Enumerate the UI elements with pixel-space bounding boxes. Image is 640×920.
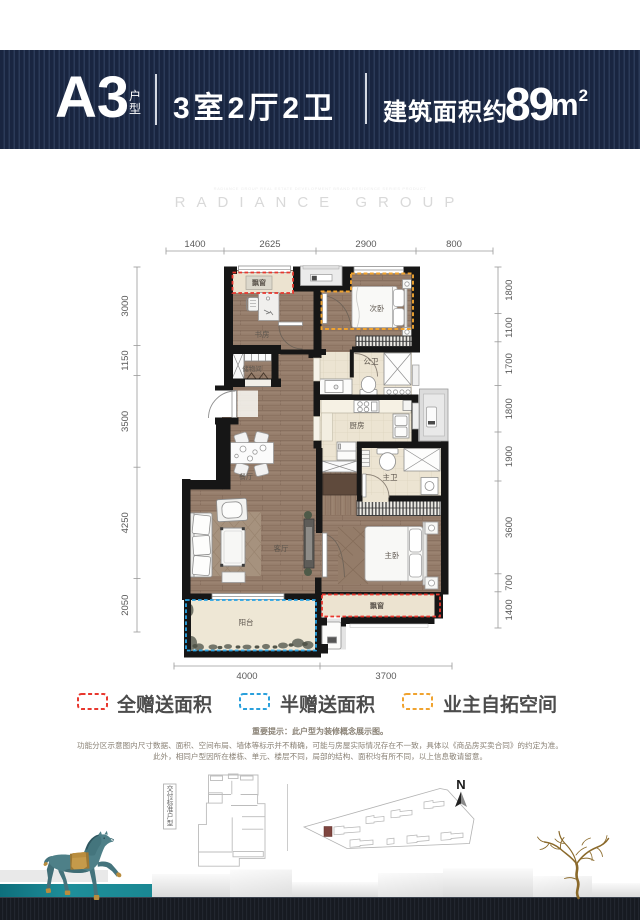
svg-text:3700: 3700 bbox=[375, 671, 396, 682]
svg-text:2900: 2900 bbox=[355, 239, 376, 250]
svg-text:4250: 4250 bbox=[120, 512, 131, 533]
svg-text:次卧: 次卧 bbox=[370, 303, 385, 313]
svg-text:餐厅: 餐厅 bbox=[239, 472, 253, 481]
svg-text:1400: 1400 bbox=[504, 599, 515, 620]
svg-text:1800: 1800 bbox=[504, 398, 515, 419]
svg-text:3000: 3000 bbox=[120, 295, 131, 316]
svg-text:3600: 3600 bbox=[504, 517, 515, 538]
svg-text:1100: 1100 bbox=[504, 317, 515, 337]
svg-text:1900: 1900 bbox=[504, 446, 515, 467]
svg-text:2050: 2050 bbox=[120, 595, 131, 616]
svg-text:飘窗: 飘窗 bbox=[370, 601, 384, 610]
svg-text:1150: 1150 bbox=[120, 350, 131, 370]
svg-text:交付标准户型: 交付标准户型 bbox=[167, 784, 174, 828]
svg-text:公卫: 公卫 bbox=[364, 357, 379, 366]
svg-text:1700: 1700 bbox=[504, 353, 515, 374]
svg-text:阳台: 阳台 bbox=[239, 617, 254, 627]
svg-text:主卧: 主卧 bbox=[385, 550, 400, 560]
svg-text:书房: 书房 bbox=[255, 329, 270, 339]
svg-text:主卫: 主卫 bbox=[383, 472, 398, 482]
svg-text:4000: 4000 bbox=[236, 671, 257, 682]
svg-text:700: 700 bbox=[504, 575, 515, 591]
svg-text:3500: 3500 bbox=[120, 411, 131, 432]
svg-text:储物间: 储物间 bbox=[242, 364, 262, 373]
svg-text:飘窗: 飘窗 bbox=[252, 278, 266, 287]
svg-text:800: 800 bbox=[446, 239, 462, 250]
svg-text:1400: 1400 bbox=[184, 239, 205, 250]
svg-text:厨房: 厨房 bbox=[350, 420, 365, 430]
svg-text:1800: 1800 bbox=[504, 280, 515, 301]
svg-text:客厅: 客厅 bbox=[274, 543, 289, 553]
svg-text:N: N bbox=[456, 777, 465, 792]
svg-text:2625: 2625 bbox=[259, 239, 280, 250]
